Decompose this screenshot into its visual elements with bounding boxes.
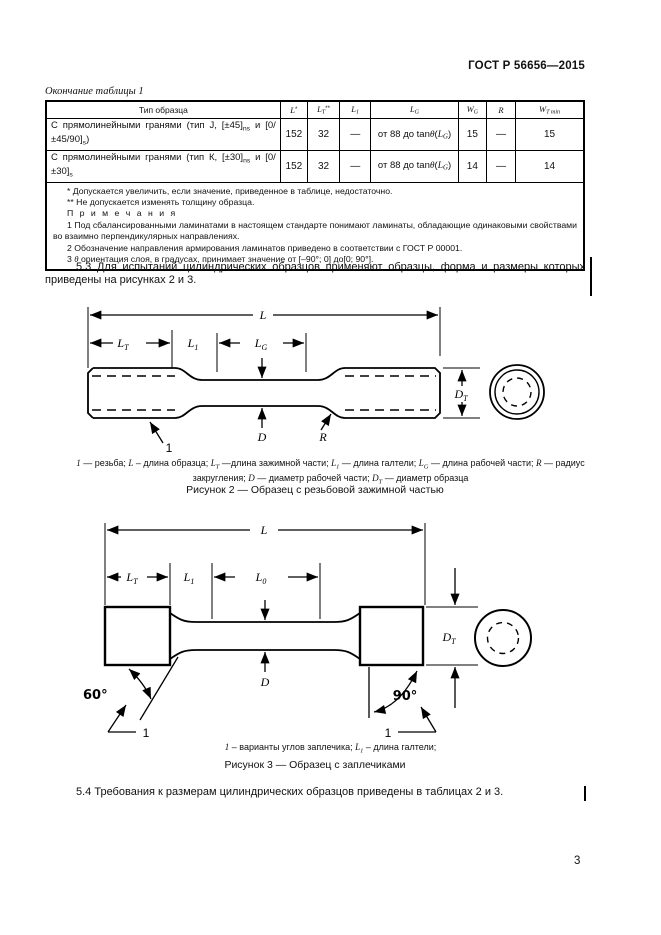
fig2-label-LT: LT [116,336,129,352]
cell-WTmin: 14 [516,150,584,182]
table-continuation-caption: Окончание таблицы 1 [45,86,144,97]
fig3-cross-section [475,610,531,666]
fig3-label-90deg: 90° [393,689,418,704]
fig3-label-L1: L1 [183,570,195,586]
cell-R: — [486,150,515,182]
column-header-L: L* [280,101,307,119]
fig3-label-D: D [260,675,270,689]
figure-3-drawing: L LT L1 L0 D [0,515,661,747]
fig3-dim-LT: LT [107,570,168,586]
fig2-callout-label: 1 [166,441,173,455]
figure-2-title: Рисунок 2 — Образец с резьбовой зажимной… [45,484,585,496]
cell-LG: от 88 до tanθ(LG) [371,119,458,151]
cell-type: С прямолинейными гранями (тип J, [±45]ns… [46,119,280,151]
cell-L: 152 [280,119,307,151]
fig2-label-R: R [318,430,327,444]
fig2-label-D: D [257,430,267,444]
notes-title: П р и м е ч а н и я [53,208,577,219]
table-row-type-j: С прямолинейными гранями (тип J, [±45]ns… [46,119,584,151]
fig3-dim-L0: L0 [214,570,318,586]
fig2-cross-section [490,365,544,419]
cell-L1: — [340,119,371,151]
fig3-callout-label-left: 1 [143,726,150,740]
fig3-label-LT: LT [125,570,138,586]
footnote-1: * Допускается увеличить, если значение, … [53,186,577,197]
cell-L: 152 [280,150,307,182]
fig3-callout-label-right: 1 [385,726,392,740]
figure-3-title: Рисунок 3 — Образец с заплечиками [45,759,585,771]
note-1: 1 Под сбалансированными ламинатами в нас… [53,220,577,243]
cell-R: — [486,119,515,151]
cell-type: С прямолинейными гранями (тип К, [±30]ns… [46,150,280,182]
column-header-LG: LG [371,101,458,119]
cell-WTmin: 15 [516,119,584,151]
cell-LT: 32 [307,150,339,182]
table-header-row: Тип образца L* LT** L1 LG WG R WT min [46,101,584,119]
cell-WG: 14 [458,150,486,182]
fig3-label-60deg: 60° [83,688,108,703]
footnote-2: ** Не допускается изменять толщину образ… [53,197,577,208]
column-header-L1: L1 [340,101,371,119]
table-row-type-k: С прямолинейными гранями (тип К, [±30]ns… [46,150,584,182]
table-1: Тип образца L* LT** L1 LG WG R WT min С … [45,100,585,271]
fig2-specimen-outline [88,368,440,418]
fig2-dim-LG: LG [219,336,304,352]
cell-LG: от 88 до tanθ(LG) [371,150,458,182]
fig2-label-LG: LG [254,336,268,352]
page-number: 3 [574,855,580,867]
fig3-specimen-outline [105,607,423,665]
column-header-type: Тип образца [46,101,280,119]
fig2-dim-LT: LT [90,336,170,352]
fig3-label-L: L [260,523,268,537]
note-2: 2 Обозначение направления армирования ла… [53,243,577,254]
fig2-callout-1: 1 [150,422,173,455]
change-bar [584,786,586,801]
fig3-angle-90: 90° [369,667,417,718]
cell-LT: 32 [307,119,339,151]
figure-3-caption: 1 – варианты углов заплечика; L1 – длина… [58,742,603,757]
fig3-callout-1-left: 1 [108,705,150,740]
table-footnotes-row: * Допускается увеличить, если значение, … [46,182,584,270]
fig3-label-L0: L0 [255,570,267,586]
column-header-R: R [486,101,515,119]
paragraph-5-4: 5.4 Требования к размерам цилиндрических… [45,786,585,799]
fig2-dim-R: R [318,414,331,444]
fig3-dim-D: D [260,600,270,689]
column-header-WG: WG [458,101,486,119]
fig3-dim-L: L [107,523,423,537]
document-page: ГОСТ Р 56656—2015 Окончание таблицы 1 Ти… [0,0,661,935]
fig2-label-DT: DT [453,387,468,403]
fig2-label-L: L [259,308,267,322]
column-header-LT: LT** [307,101,339,119]
figure-2-drawing: L LT L1 LG [0,300,661,460]
fig3-dim-DT: DT [426,568,478,708]
fig3-callout-1-right: 1 [385,707,436,740]
table-footnotes-cell: * Допускается увеличить, если значение, … [46,182,584,270]
cell-WG: 15 [458,119,486,151]
fig3-angle-60: 60° [83,657,178,720]
standard-code-header: ГОСТ Р 56656—2015 [468,60,585,72]
fig2-dim-DT: DT [443,368,480,418]
fig2-dim-D: D [257,358,267,444]
paragraph-5-3: 5.3 Для испытаний цилиндрических образцо… [45,261,585,287]
fig2-dim-L: L [90,308,438,322]
column-header-WTmin: WT min [516,101,584,119]
fig3-label-DT: DT [441,630,456,646]
cell-L1: — [340,150,371,182]
fig2-label-L1: L1 [187,336,199,352]
change-bar [590,257,592,296]
